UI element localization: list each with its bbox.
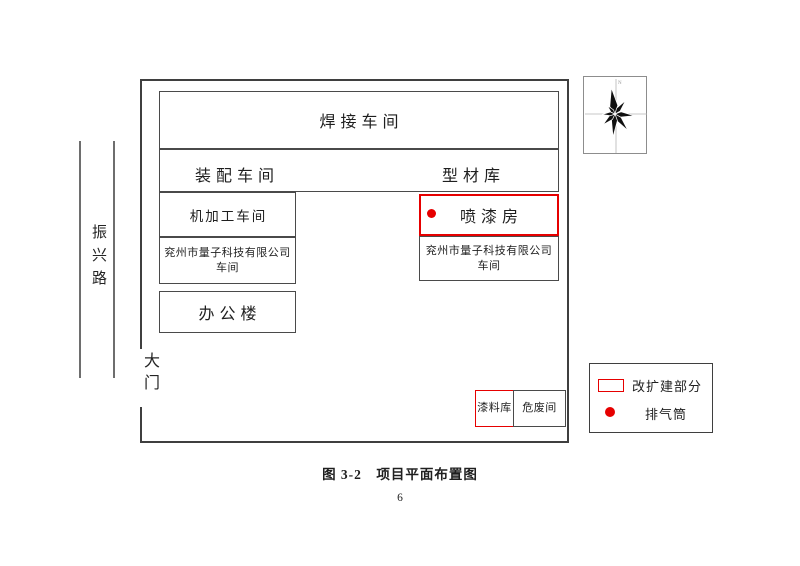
page-number: 6 bbox=[0, 492, 800, 504]
compass-tick-mark: N bbox=[618, 81, 622, 86]
company-workshop-right-sub: 车间 bbox=[478, 259, 501, 274]
exhaust-stack-dot bbox=[427, 209, 436, 218]
legend-rebuild-swatch-icon bbox=[598, 379, 624, 392]
document-page: 振兴路 大门 焊接车间 装配车间 型材库 机加工车间 兖州市量子科技有限公司 车… bbox=[0, 0, 800, 566]
profile-warehouse-label: 型材库 bbox=[437, 162, 505, 186]
machining-workshop-label: 机加工车间 bbox=[188, 205, 268, 225]
building-company-workshop-right: 兖州市量子科技有限公司 车间 bbox=[419, 236, 559, 281]
gate-label: 大门 bbox=[137, 352, 161, 396]
building-machining-workshop: 机加工车间 bbox=[159, 192, 296, 237]
road-name-label: 振兴路 bbox=[88, 224, 109, 293]
figure-caption: 图 3-2 项目平面布置图 bbox=[0, 463, 800, 483]
welding-workshop-label: 焊接车间 bbox=[314, 108, 403, 132]
compass: N bbox=[583, 76, 647, 154]
building-spray-paint-room: 喷漆房 bbox=[419, 194, 559, 236]
building-hazardous-waste-room: 危废间 bbox=[513, 390, 566, 427]
road-edge-line-left bbox=[79, 141, 81, 378]
company-workshop-left-sub: 车间 bbox=[216, 261, 239, 276]
legend-exhaust-label: 排气筒 bbox=[645, 404, 687, 423]
building-company-workshop-left: 兖州市量子科技有限公司 车间 bbox=[159, 237, 296, 284]
company-workshop-right-name: 兖州市量子科技有限公司 bbox=[426, 244, 553, 259]
legend-exhaust-dot-icon bbox=[605, 407, 615, 417]
assembly-workshop-label: 装配车间 bbox=[190, 162, 279, 186]
wind-rose-icon: N bbox=[584, 77, 648, 155]
building-welding-workshop: 焊接车间 bbox=[159, 91, 559, 149]
building-paint-material-store: 漆料库 bbox=[475, 390, 514, 427]
road-edge-line-right bbox=[113, 141, 115, 378]
company-workshop-left-name: 兖州市量子科技有限公司 bbox=[164, 246, 291, 261]
legend: 改扩建部分 排气筒 bbox=[589, 363, 713, 433]
spray-paint-room-label: 喷漆房 bbox=[455, 203, 523, 227]
building-assembly-and-profile-band: 装配车间 型材库 bbox=[159, 149, 559, 192]
hazardous-waste-room-label: 危废间 bbox=[522, 401, 557, 416]
office-building-label: 办公楼 bbox=[193, 300, 261, 324]
building-office: 办公楼 bbox=[159, 291, 296, 333]
legend-rebuild-label: 改扩建部分 bbox=[632, 376, 702, 395]
paint-material-store-label: 漆料库 bbox=[477, 401, 512, 416]
